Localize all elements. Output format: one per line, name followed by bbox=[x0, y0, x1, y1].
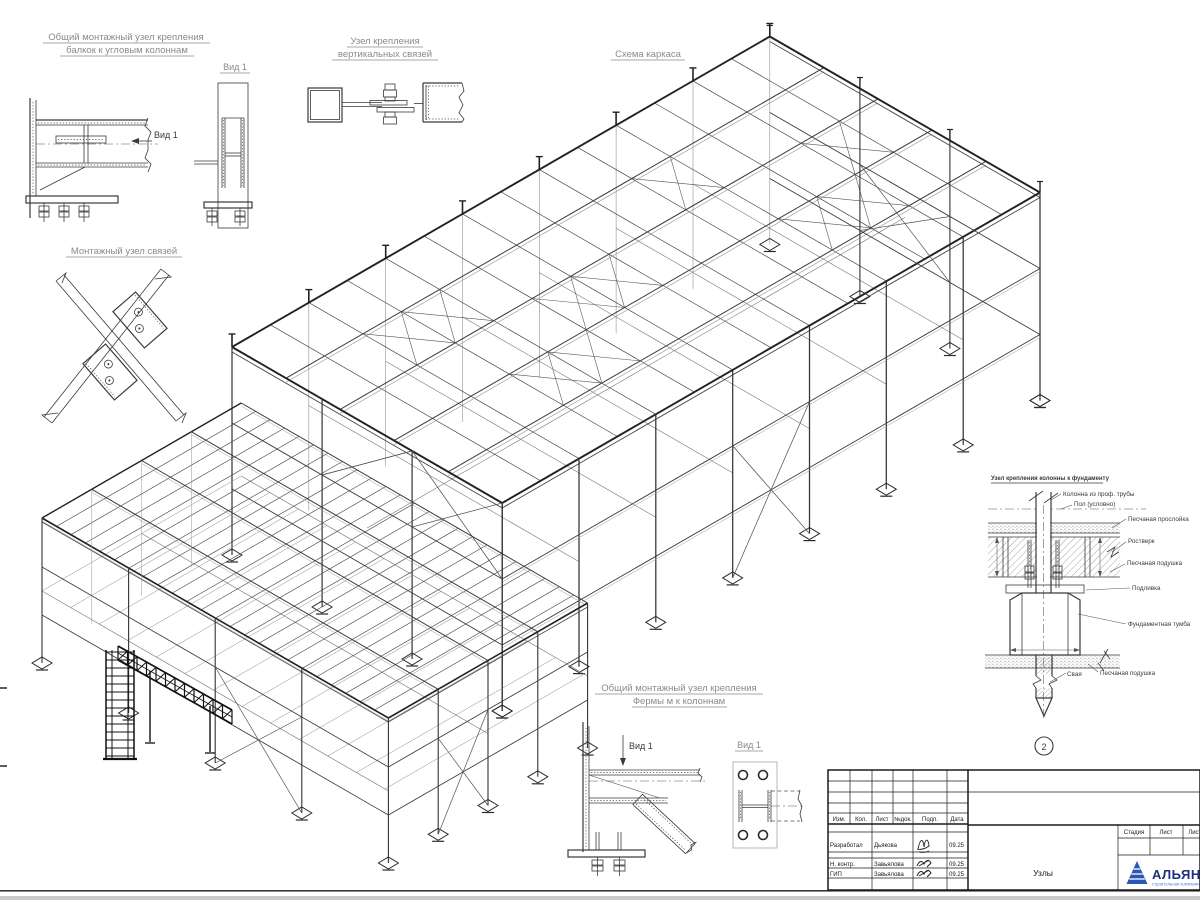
signature-gip bbox=[917, 870, 931, 877]
doc-name: Узлы bbox=[1033, 868, 1053, 878]
detail5-title-line2: Фермы м к колоннам bbox=[633, 696, 725, 707]
svg-text:Лист: Лист bbox=[875, 817, 888, 823]
svg-text:Колонна из проф. трубы: Колонна из проф. трубы bbox=[1063, 490, 1135, 498]
frame-scheme-wireframe bbox=[32, 24, 1050, 871]
detail1-view-label: Вид 1 bbox=[223, 62, 247, 72]
title-block: Изм. Кол. Лист №док. Подп. Дата Разработ… bbox=[828, 770, 1200, 890]
svg-text:Ростверк: Ростверк bbox=[1128, 538, 1155, 545]
foundation-labels: Колонна из проф. трубы Пол (условно) Пес… bbox=[1050, 490, 1191, 682]
detail-brace-x-node: Монтажный узел связей bbox=[42, 246, 186, 423]
signature-ncontrol bbox=[917, 860, 931, 867]
revision-header: Изм. Кол. Лист №док. Подп. Дата bbox=[833, 816, 965, 823]
detail2-bolt bbox=[384, 84, 397, 124]
detail-beam-corner-column: Общий монтажный узел крепления балкок к … bbox=[26, 32, 252, 228]
detail1-title-line1: Общий монтажный узел крепления bbox=[48, 32, 203, 43]
detail5-section-drawing: Вид 1 bbox=[568, 722, 706, 876]
svg-text:Завьялова: Завьялова bbox=[874, 872, 905, 878]
foundation-marker: 2 bbox=[1041, 742, 1046, 752]
detail2-right-tube bbox=[423, 83, 464, 122]
signature-row-gip: ГИП Завьялова 09.25 bbox=[830, 870, 965, 878]
detail1-view-callout: Вид 1 bbox=[154, 130, 178, 140]
detail5-side-view: Вид 1 bbox=[733, 740, 805, 848]
detail2-title-line2: вертикальных связей bbox=[338, 49, 432, 60]
sheet-frame bbox=[0, 688, 1200, 900]
svg-text:№док.: №док. bbox=[894, 816, 912, 823]
svg-text:ГИП: ГИП bbox=[830, 872, 842, 878]
svg-text:Разработал: Разработал bbox=[830, 843, 863, 849]
logo-pyramid-icon bbox=[1127, 861, 1148, 884]
svg-text:Кол.: Кол. bbox=[855, 817, 867, 823]
company-logo: АЛЬЯНС строительная компания bbox=[1127, 861, 1200, 887]
stage-header: Стадия Лист Листов bbox=[1124, 830, 1200, 836]
svg-text:Песчаная подушка: Песчаная подушка bbox=[1127, 560, 1183, 567]
scheme-title: Схема каркаса bbox=[615, 49, 682, 60]
svg-text:Подливка: Подливка bbox=[1132, 585, 1161, 592]
svg-text:Лист: Лист bbox=[1159, 830, 1172, 836]
svg-text:09.25: 09.25 bbox=[949, 872, 965, 878]
signature-row-developer: Разработал Дьякова 09.25 bbox=[830, 840, 965, 852]
detail1-view-arrow: Вид 1 bbox=[131, 130, 178, 144]
company-name: АЛЬЯНС bbox=[1152, 867, 1200, 882]
svg-text:Завьялова: Завьялова bbox=[874, 862, 905, 868]
detail3-title: Монтажный узел связей bbox=[71, 246, 177, 257]
svg-text:Подп.: Подп. bbox=[922, 817, 938, 823]
detail5-diagonal-member bbox=[633, 793, 698, 855]
svg-text:Изм.: Изм. bbox=[833, 817, 846, 823]
svg-text:Фундаментная тумба: Фундаментная тумба bbox=[1128, 620, 1191, 628]
detail1-anchor-bolts bbox=[39, 203, 89, 222]
detail1-title-line2: балкок к угловым колоннам bbox=[66, 45, 188, 56]
svg-text:Листов: Листов bbox=[1188, 830, 1200, 836]
svg-text:Свая: Свая bbox=[1067, 671, 1082, 678]
drawing-sheet: Общий монтажный узел крепления балкок к … bbox=[0, 0, 1200, 900]
detail3-gusset-lower bbox=[83, 344, 137, 400]
detail-truss-to-column: Общий монтажный узел крепления Фермы м к… bbox=[568, 683, 805, 876]
detail1-section-drawing bbox=[26, 98, 158, 222]
svg-text:Песчаная подушка: Песчаная подушка bbox=[1100, 670, 1156, 677]
detail5-view-label: Вид 1 bbox=[737, 740, 761, 750]
svg-text:Дата: Дата bbox=[950, 817, 964, 823]
signature-developer bbox=[917, 840, 929, 852]
svg-text:09.25: 09.25 bbox=[949, 862, 965, 868]
detail2-title-line1: Узел крепления bbox=[350, 36, 419, 47]
detail-vertical-brace-node: Узел крепления вертикальных связей bbox=[308, 36, 464, 124]
foundation-title: Узел крепления колонны к фундаменту bbox=[991, 475, 1110, 482]
company-subtitle: строительная компания bbox=[1152, 882, 1200, 887]
svg-text:Песчаная прослойка: Песчаная прослойка bbox=[1128, 515, 1189, 523]
detail5-view-callout: Вид 1 bbox=[629, 741, 653, 751]
svg-text:Пол (условно): Пол (условно) bbox=[1074, 501, 1115, 508]
detail1-side-view: Вид 1 bbox=[194, 62, 252, 228]
foundation-detail: Узел крепления колонны к фундаменту bbox=[985, 475, 1191, 755]
svg-text:Стадия: Стадия bbox=[1124, 830, 1144, 836]
svg-text:Дьякова: Дьякова bbox=[874, 843, 898, 849]
detail5-title-line1: Общий монтажный узел крепления bbox=[601, 683, 756, 694]
svg-text:Н. контр.: Н. контр. bbox=[830, 862, 855, 868]
svg-text:09.25: 09.25 bbox=[949, 843, 965, 849]
signature-row-ncontrol: Н. контр. Завьялова 09.25 bbox=[830, 860, 965, 868]
